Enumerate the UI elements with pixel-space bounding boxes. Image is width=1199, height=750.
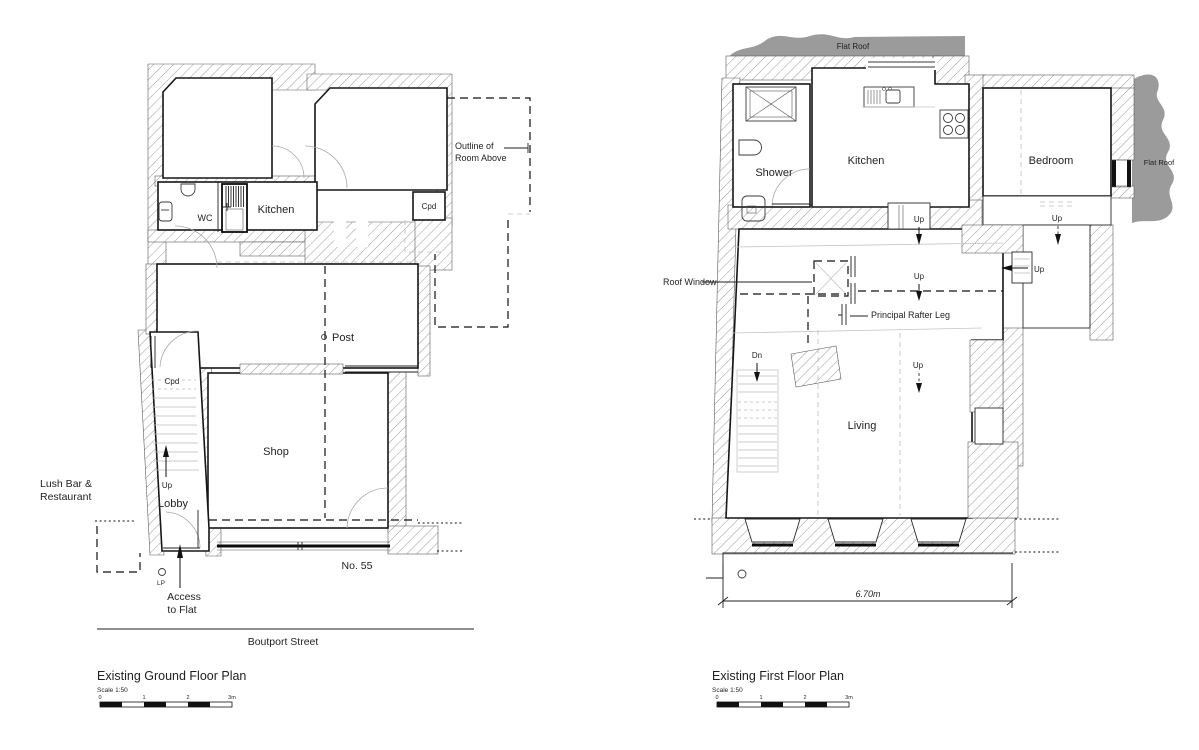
gf-room-label-wc: WC <box>198 213 213 223</box>
ff-bedroom-threshold <box>983 196 1111 225</box>
ff-dimension-text: 6.70m <box>855 589 881 599</box>
first-floor-plan: Flat Roof Flat Roof Shower Kitchen Bedro… <box>663 34 1175 707</box>
ff-bedroom-window <box>1112 160 1131 187</box>
gf-scale-2: 2 <box>186 695 189 701</box>
gf-shop-room <box>208 373 388 528</box>
gf-room-label-lobby: Lobby <box>158 498 188 510</box>
ff-title-block: Existing First Floor Plan Scale 1:50 0 1… <box>712 669 853 707</box>
ff-scale-note: Scale 1:50 <box>712 687 743 694</box>
ff-label-flat-roof-right: Flat Roof <box>1144 158 1175 167</box>
ff-bedroom-room <box>983 88 1111 196</box>
gf-lamp-post-symbol <box>159 569 166 576</box>
ff-label-dn: Dn <box>752 351 762 360</box>
gf-note-access-2: to Flat <box>167 604 196 616</box>
ff-note-rafter: Principal Rafter Leg <box>871 310 950 320</box>
gf-street-name: Boutport Street <box>248 636 319 648</box>
gf-kitchen-stairs <box>222 184 247 232</box>
ff-living-notch <box>975 408 1003 444</box>
gf-scale-note: Scale 1:50 <box>97 687 128 694</box>
gf-back-room <box>163 78 272 178</box>
ff-label-flat-roof-top: Flat Roof <box>837 42 870 51</box>
ff-living-area <box>726 229 1003 518</box>
gf-room-label-shop: Shop <box>263 446 289 458</box>
gf-note-lush-2: Restaurant <box>40 491 91 503</box>
gf-note-outline-1: Outline of <box>455 141 494 151</box>
ff-windows <box>745 519 966 545</box>
architectural-drawing-sheet: WC Kitchen Cpd Post Cpd Shop Up Lobby Ou… <box>0 0 1199 750</box>
gf-label-up: Up <box>162 481 173 490</box>
ff-scale-3: 3m <box>845 695 853 701</box>
gf-room-label-kitchen: Kitchen <box>258 204 295 216</box>
ff-title: Existing First Floor Plan <box>712 669 844 683</box>
gf-shop-partition <box>240 364 343 374</box>
ff-label-up-corridor: Up <box>914 272 925 281</box>
ff-label-up-kitchen: Up <box>914 215 925 224</box>
ff-kitchen-room <box>812 68 969 207</box>
ff-ground-marker <box>738 570 746 578</box>
ground-floor-plan: WC Kitchen Cpd Post Cpd Shop Up Lobby Ou… <box>40 64 530 707</box>
ff-label-up-living: Up <box>913 361 924 370</box>
ff-scale-0: 0 <box>715 695 718 701</box>
gf-title: Existing Ground Floor Plan <box>97 669 246 683</box>
ff-scale-1: 1 <box>759 695 762 701</box>
ff-room-label-kitchen: Kitchen <box>848 155 885 167</box>
gf-note-lush-1: Lush Bar & <box>40 478 92 490</box>
gf-room-label-cpd-lobby: Cpd <box>165 377 180 386</box>
gf-house-number: No. 55 <box>342 560 373 572</box>
ff-room-label-bedroom: Bedroom <box>1029 155 1074 167</box>
gf-note-outline-2: Room Above <box>455 153 507 163</box>
ff-shower-room <box>733 84 810 207</box>
ff-flat-roof-right <box>1132 75 1174 223</box>
gf-note-access-1: Access <box>167 591 201 603</box>
gf-label-lp: LP <box>157 580 165 587</box>
ff-label-up-landing: Up <box>1034 265 1045 274</box>
gf-room-label-cpd-upper: Cpd <box>422 202 437 211</box>
ff-room-label-shower: Shower <box>755 167 793 179</box>
ff-scale-bar: 0 1 2 3m <box>715 695 853 707</box>
ff-side-corridor <box>1023 225 1090 328</box>
ff-note-roof-window: Roof Window <box>663 277 717 287</box>
gf-upper-right-room <box>315 88 447 190</box>
gf-scale-bar: 0 1 2 3m <box>98 695 236 707</box>
ff-dimension <box>718 563 1017 608</box>
ff-label-up-bedroom: Up <box>1052 214 1063 223</box>
gf-room-label-post: Post <box>332 332 354 344</box>
gf-scale-3: 3m <box>228 695 236 701</box>
gf-scale-1: 1 <box>142 695 145 701</box>
gf-scale-0: 0 <box>98 695 101 701</box>
ff-scale-2: 2 <box>803 695 806 701</box>
gf-title-block: Existing Ground Floor Plan Scale 1:50 0 … <box>97 669 246 707</box>
floor-plans-svg: WC Kitchen Cpd Post Cpd Shop Up Lobby Ou… <box>0 0 1199 750</box>
ff-room-label-living: Living <box>848 420 877 432</box>
